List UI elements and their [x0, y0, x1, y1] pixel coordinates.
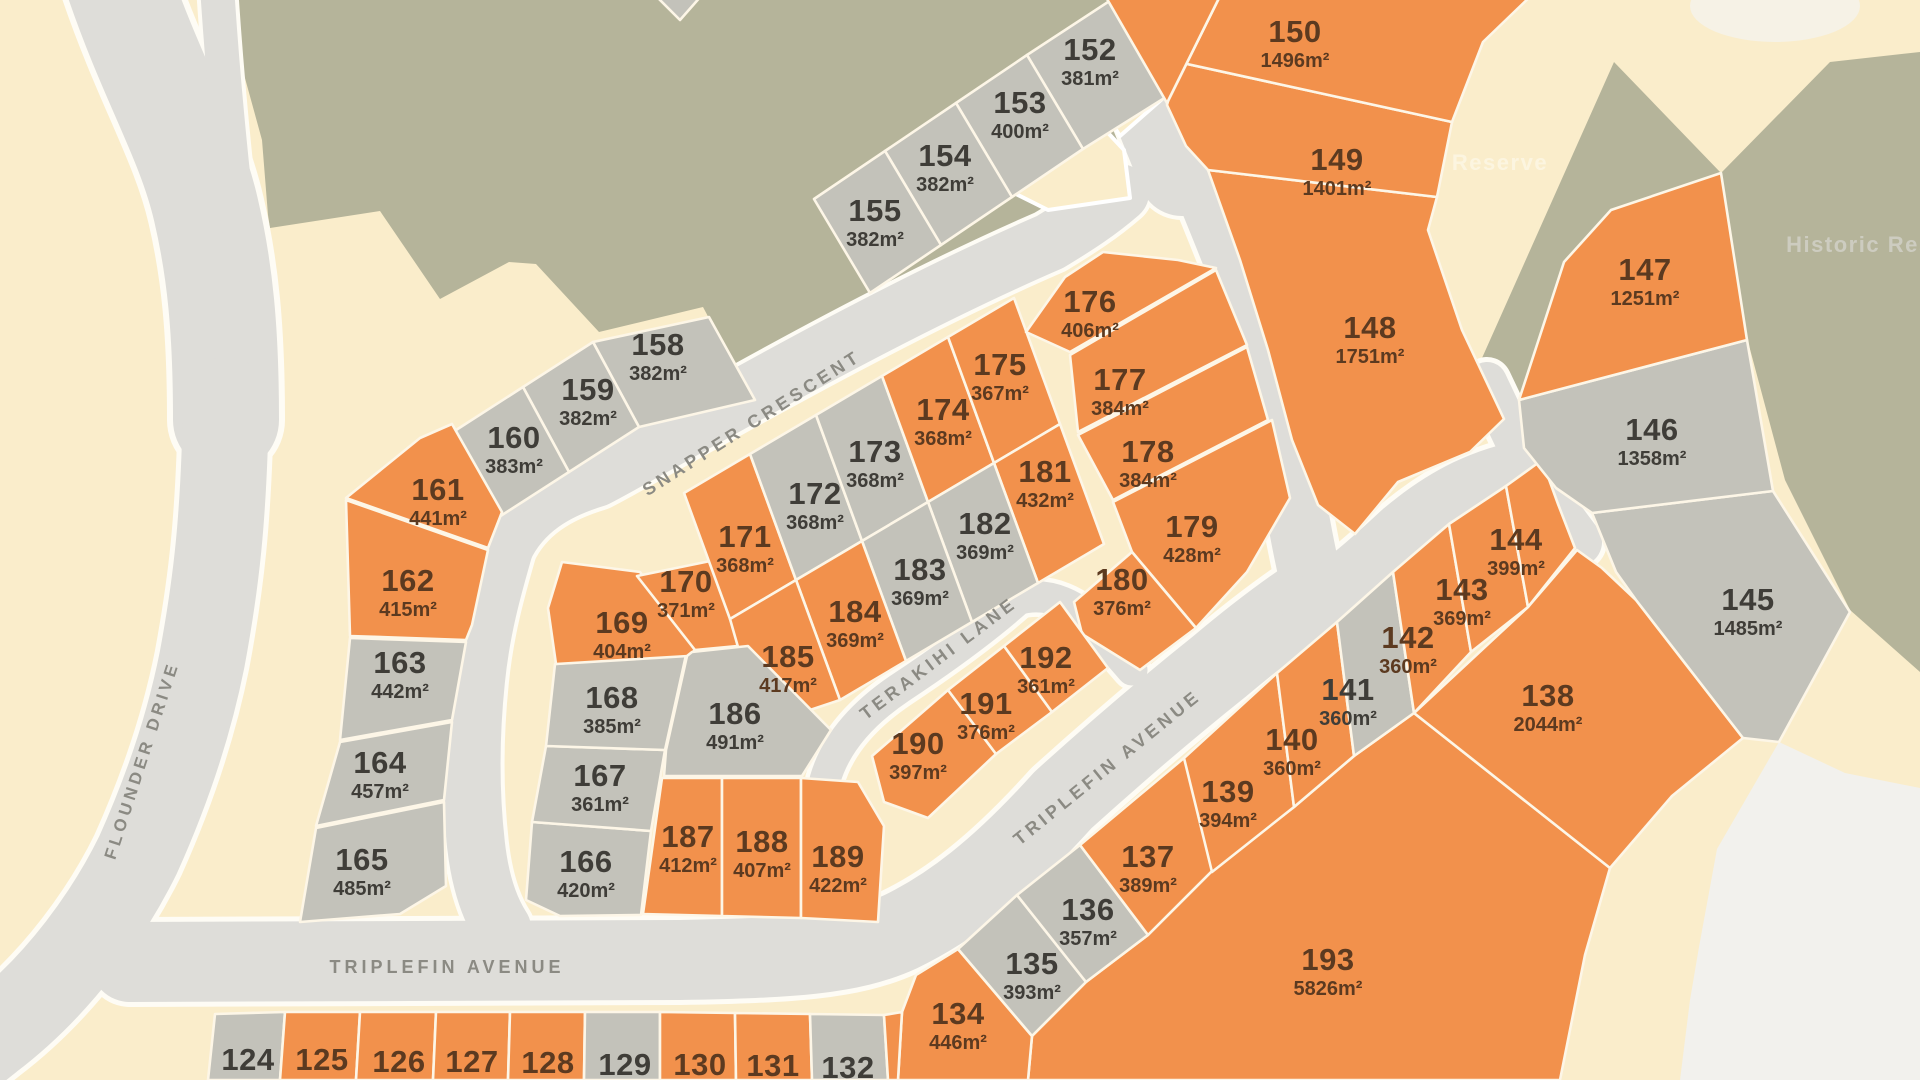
svg-text:191: 191: [959, 686, 1012, 721]
svg-text:187: 187: [661, 819, 714, 854]
svg-text:175: 175: [973, 347, 1026, 382]
svg-text:399m²: 399m²: [1487, 558, 1545, 580]
svg-text:360m²: 360m²: [1263, 758, 1321, 780]
svg-text:138: 138: [1521, 678, 1574, 713]
svg-text:446m²: 446m²: [929, 1032, 987, 1054]
svg-text:404m²: 404m²: [593, 641, 651, 663]
svg-text:182: 182: [958, 506, 1011, 541]
svg-text:148: 148: [1343, 310, 1396, 345]
svg-text:422m²: 422m²: [809, 875, 867, 897]
svg-text:165: 165: [335, 842, 388, 877]
svg-text:132: 132: [821, 1050, 874, 1080]
svg-text:152: 152: [1063, 32, 1116, 67]
svg-text:131: 131: [746, 1048, 799, 1080]
svg-text:130: 130: [673, 1047, 726, 1080]
svg-text:360m²: 360m²: [1319, 708, 1377, 730]
svg-text:491m²: 491m²: [706, 732, 764, 754]
svg-text:163: 163: [373, 645, 426, 680]
svg-text:179: 179: [1165, 509, 1218, 544]
svg-text:139: 139: [1201, 774, 1254, 809]
svg-text:159: 159: [561, 372, 614, 407]
svg-text:441m²: 441m²: [409, 508, 467, 530]
svg-text:417m²: 417m²: [759, 675, 817, 697]
svg-text:389m²: 389m²: [1119, 875, 1177, 897]
svg-text:126: 126: [372, 1044, 425, 1079]
svg-text:178: 178: [1121, 434, 1174, 469]
svg-text:188: 188: [735, 824, 788, 859]
svg-text:420m²: 420m²: [557, 880, 615, 902]
svg-text:382m²: 382m²: [629, 363, 687, 385]
svg-text:172: 172: [788, 476, 841, 511]
svg-text:153: 153: [993, 85, 1046, 120]
svg-text:185: 185: [761, 639, 814, 674]
svg-text:135: 135: [1005, 946, 1058, 981]
svg-text:129: 129: [598, 1047, 651, 1080]
svg-text:394m²: 394m²: [1199, 810, 1257, 832]
svg-text:134: 134: [931, 996, 984, 1031]
svg-text:357m²: 357m²: [1059, 928, 1117, 950]
svg-text:174: 174: [916, 392, 969, 427]
svg-text:150: 150: [1268, 14, 1321, 49]
svg-text:166: 166: [559, 844, 612, 879]
svg-text:128: 128: [521, 1045, 574, 1080]
svg-text:485m²: 485m²: [333, 878, 391, 900]
svg-text:385m²: 385m²: [583, 716, 641, 738]
svg-text:183: 183: [893, 552, 946, 587]
svg-text:361m²: 361m²: [571, 794, 629, 816]
svg-text:360m²: 360m²: [1379, 656, 1437, 678]
svg-text:371m²: 371m²: [657, 600, 715, 622]
svg-text:158: 158: [631, 327, 684, 362]
svg-text:186: 186: [708, 696, 761, 731]
svg-text:5826m²: 5826m²: [1294, 978, 1363, 1000]
svg-text:160: 160: [487, 420, 540, 455]
svg-text:Historic Reserve: Historic Reserve: [1786, 232, 1920, 257]
svg-text:184: 184: [828, 594, 881, 629]
svg-text:393m²: 393m²: [1003, 982, 1061, 1004]
svg-text:125: 125: [295, 1042, 348, 1077]
svg-text:1358m²: 1358m²: [1618, 448, 1687, 470]
svg-text:167: 167: [573, 758, 626, 793]
svg-text:170: 170: [659, 564, 712, 599]
svg-text:415m²: 415m²: [379, 599, 437, 621]
svg-text:190: 190: [891, 726, 944, 761]
svg-text:407m²: 407m²: [733, 860, 791, 882]
svg-text:142: 142: [1381, 620, 1434, 655]
svg-text:169: 169: [595, 605, 648, 640]
svg-text:369m²: 369m²: [956, 542, 1014, 564]
svg-text:442m²: 442m²: [371, 681, 429, 703]
svg-text:369m²: 369m²: [1433, 608, 1491, 630]
svg-text:180: 180: [1095, 562, 1148, 597]
svg-text:143: 143: [1435, 572, 1488, 607]
svg-text:412m²: 412m²: [659, 855, 717, 877]
svg-text:1251m²: 1251m²: [1611, 288, 1680, 310]
svg-text:2044m²: 2044m²: [1514, 714, 1583, 736]
svg-text:147: 147: [1618, 252, 1671, 287]
svg-text:384m²: 384m²: [1119, 470, 1177, 492]
svg-text:173: 173: [848, 434, 901, 469]
svg-text:382m²: 382m²: [916, 174, 974, 196]
svg-text:140: 140: [1265, 722, 1318, 757]
svg-text:406m²: 406m²: [1061, 320, 1119, 342]
svg-text:164: 164: [353, 745, 406, 780]
svg-text:192: 192: [1019, 640, 1072, 675]
svg-text:361m²: 361m²: [1017, 676, 1075, 698]
svg-text:1751m²: 1751m²: [1336, 346, 1405, 368]
svg-text:127: 127: [445, 1044, 498, 1079]
svg-text:384m²: 384m²: [1091, 398, 1149, 420]
svg-text:136: 136: [1061, 892, 1114, 927]
svg-text:176: 176: [1063, 284, 1116, 319]
svg-text:383m²: 383m²: [485, 456, 543, 478]
svg-text:144: 144: [1489, 522, 1542, 557]
svg-text:137: 137: [1121, 839, 1174, 874]
svg-text:Reserve: Reserve: [1452, 150, 1548, 175]
svg-text:368m²: 368m²: [914, 428, 972, 450]
svg-text:155: 155: [848, 193, 901, 228]
svg-text:432m²: 432m²: [1016, 490, 1074, 512]
svg-text:382m²: 382m²: [559, 408, 617, 430]
svg-text:367m²: 367m²: [971, 383, 1029, 405]
svg-text:177: 177: [1093, 362, 1146, 397]
svg-text:368m²: 368m²: [846, 470, 904, 492]
svg-text:171: 171: [718, 519, 771, 554]
svg-text:368m²: 368m²: [786, 512, 844, 534]
svg-text:368m²: 368m²: [716, 555, 774, 577]
svg-text:189: 189: [811, 839, 864, 874]
svg-text:162: 162: [381, 563, 434, 598]
svg-text:181: 181: [1018, 454, 1071, 489]
svg-text:124: 124: [221, 1042, 274, 1077]
svg-text:382m²: 382m²: [846, 229, 904, 251]
svg-text:TRIPLEFIN AVENUE: TRIPLEFIN AVENUE: [329, 957, 564, 977]
svg-text:369m²: 369m²: [891, 588, 949, 610]
svg-text:149: 149: [1310, 142, 1363, 177]
svg-text:376m²: 376m²: [1093, 598, 1151, 620]
svg-text:146: 146: [1625, 412, 1678, 447]
svg-text:161: 161: [411, 472, 464, 507]
svg-text:145: 145: [1721, 582, 1774, 617]
svg-text:376m²: 376m²: [957, 722, 1015, 744]
svg-text:457m²: 457m²: [351, 781, 409, 803]
svg-text:369m²: 369m²: [826, 630, 884, 652]
svg-text:381m²: 381m²: [1061, 68, 1119, 90]
svg-text:141: 141: [1321, 672, 1374, 707]
svg-text:1485m²: 1485m²: [1714, 618, 1783, 640]
svg-text:397m²: 397m²: [889, 762, 947, 784]
svg-text:154: 154: [918, 138, 971, 173]
svg-text:193: 193: [1301, 942, 1354, 977]
svg-text:428m²: 428m²: [1163, 545, 1221, 567]
svg-text:1496m²: 1496m²: [1261, 50, 1330, 72]
svg-text:400m²: 400m²: [991, 121, 1049, 143]
svg-text:1401m²: 1401m²: [1303, 178, 1372, 200]
svg-text:168: 168: [585, 680, 638, 715]
